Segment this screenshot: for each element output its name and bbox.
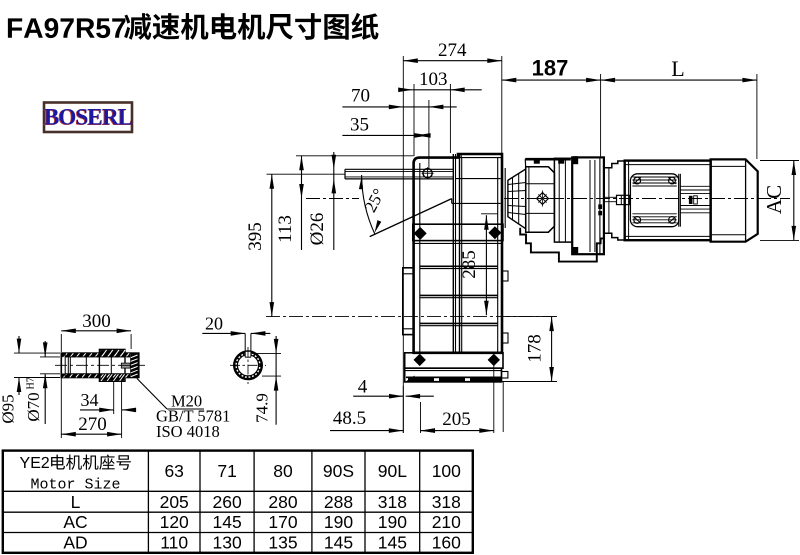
- svg-text:H7: H7: [26, 377, 37, 389]
- svg-text:110: 110: [160, 533, 188, 553]
- svg-text:AD: AD: [63, 533, 87, 553]
- svg-text:20: 20: [205, 314, 223, 334]
- svg-text:285: 285: [459, 250, 480, 279]
- svg-text:80: 80: [273, 461, 293, 481]
- svg-text:178: 178: [525, 334, 546, 363]
- svg-text:Ø70: Ø70: [24, 392, 43, 421]
- svg-text:AC: AC: [63, 512, 87, 532]
- svg-text:Ø95: Ø95: [0, 394, 18, 423]
- svg-text:L: L: [71, 492, 81, 512]
- svg-text:63: 63: [164, 461, 183, 481]
- svg-text:90L: 90L: [378, 461, 407, 481]
- svg-text:113: 113: [275, 215, 296, 243]
- svg-text:ISO 4018: ISO 4018: [156, 422, 220, 441]
- svg-text:48.5: 48.5: [333, 408, 366, 429]
- svg-text:71: 71: [217, 461, 236, 481]
- svg-text:190: 190: [378, 512, 407, 532]
- svg-text:395: 395: [245, 222, 266, 251]
- svg-text:274: 274: [438, 40, 467, 61]
- svg-text:170: 170: [268, 512, 297, 532]
- svg-text:120: 120: [160, 512, 189, 532]
- svg-text:160: 160: [432, 533, 461, 553]
- svg-text:130: 130: [212, 533, 241, 553]
- svg-text:280: 280: [268, 492, 297, 512]
- svg-text:Ø26: Ø26: [307, 213, 328, 246]
- svg-text:35: 35: [350, 115, 369, 136]
- svg-text:BOSERL: BOSERL: [44, 104, 133, 129]
- svg-text:270: 270: [78, 414, 107, 435]
- svg-text:210: 210: [432, 512, 461, 532]
- svg-text:4: 4: [358, 376, 368, 397]
- svg-text:74.9: 74.9: [253, 393, 272, 423]
- svg-text:260: 260: [212, 492, 241, 512]
- svg-text:L: L: [671, 56, 684, 81]
- svg-text:145: 145: [324, 533, 353, 553]
- svg-text:135: 135: [268, 533, 297, 553]
- svg-text:205: 205: [160, 492, 189, 512]
- svg-text:318: 318: [378, 492, 407, 512]
- svg-text:205: 205: [442, 409, 471, 430]
- svg-text:AC: AC: [762, 185, 786, 214]
- svg-text:288: 288: [324, 492, 353, 512]
- svg-text:318: 318: [432, 492, 461, 512]
- svg-text:190: 190: [324, 512, 353, 532]
- svg-text:100: 100: [432, 461, 461, 481]
- svg-text:300: 300: [82, 311, 111, 332]
- svg-text:70: 70: [351, 86, 370, 107]
- svg-text:103: 103: [419, 69, 448, 90]
- svg-text:34: 34: [81, 390, 99, 410]
- svg-text:145: 145: [378, 533, 407, 553]
- svg-text:145: 145: [212, 512, 241, 532]
- svg-text:90S: 90S: [323, 461, 354, 481]
- svg-text:187: 187: [532, 56, 569, 81]
